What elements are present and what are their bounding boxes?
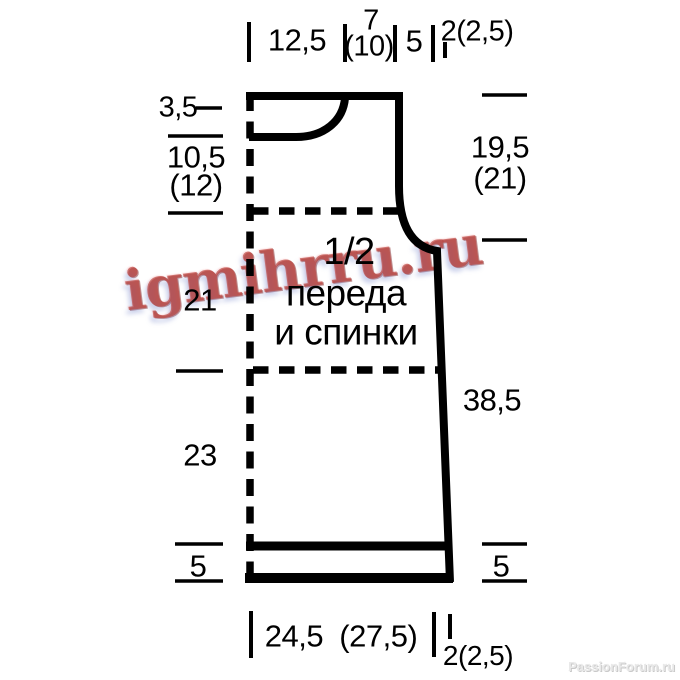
measure-left-neck-depth: 3,5 [159, 94, 198, 123]
measure-left-ribbing: 5 [190, 551, 207, 582]
measure-left-middle: 21 [183, 285, 216, 316]
measure-right-armhole-alt: (21) [473, 163, 526, 194]
measure-right-armhole: 19,5 [471, 132, 529, 163]
measure-left-upper-alt: (12) [169, 170, 222, 201]
measure-top-armhole-width: 5 [406, 26, 423, 57]
measure-bottom-width: 24,5 (27,5) [265, 621, 418, 652]
pattern-schematic: igmihrru.ru [0, 0, 680, 680]
piece-label-fraction: 1/2 [323, 233, 374, 271]
measure-top-neck-width: 12,5 [268, 25, 326, 56]
measure-bottom-side: 2(2,5) [443, 642, 513, 670]
measure-left-lower: 23 [183, 440, 216, 471]
outline-neckline-curve [249, 98, 345, 137]
credit-text: PassionForum.ru [568, 659, 675, 674]
measure-right-ribbing: 5 [493, 551, 510, 582]
piece-label-line3: и спинки [274, 314, 417, 351]
measure-top-shoulder-alt: (10) [344, 33, 394, 62]
measure-right-side-length: 38,5 [463, 385, 521, 416]
piece-label-line2: переда [286, 275, 406, 312]
measure-top-side-width: 2(2,5) [441, 18, 514, 47]
